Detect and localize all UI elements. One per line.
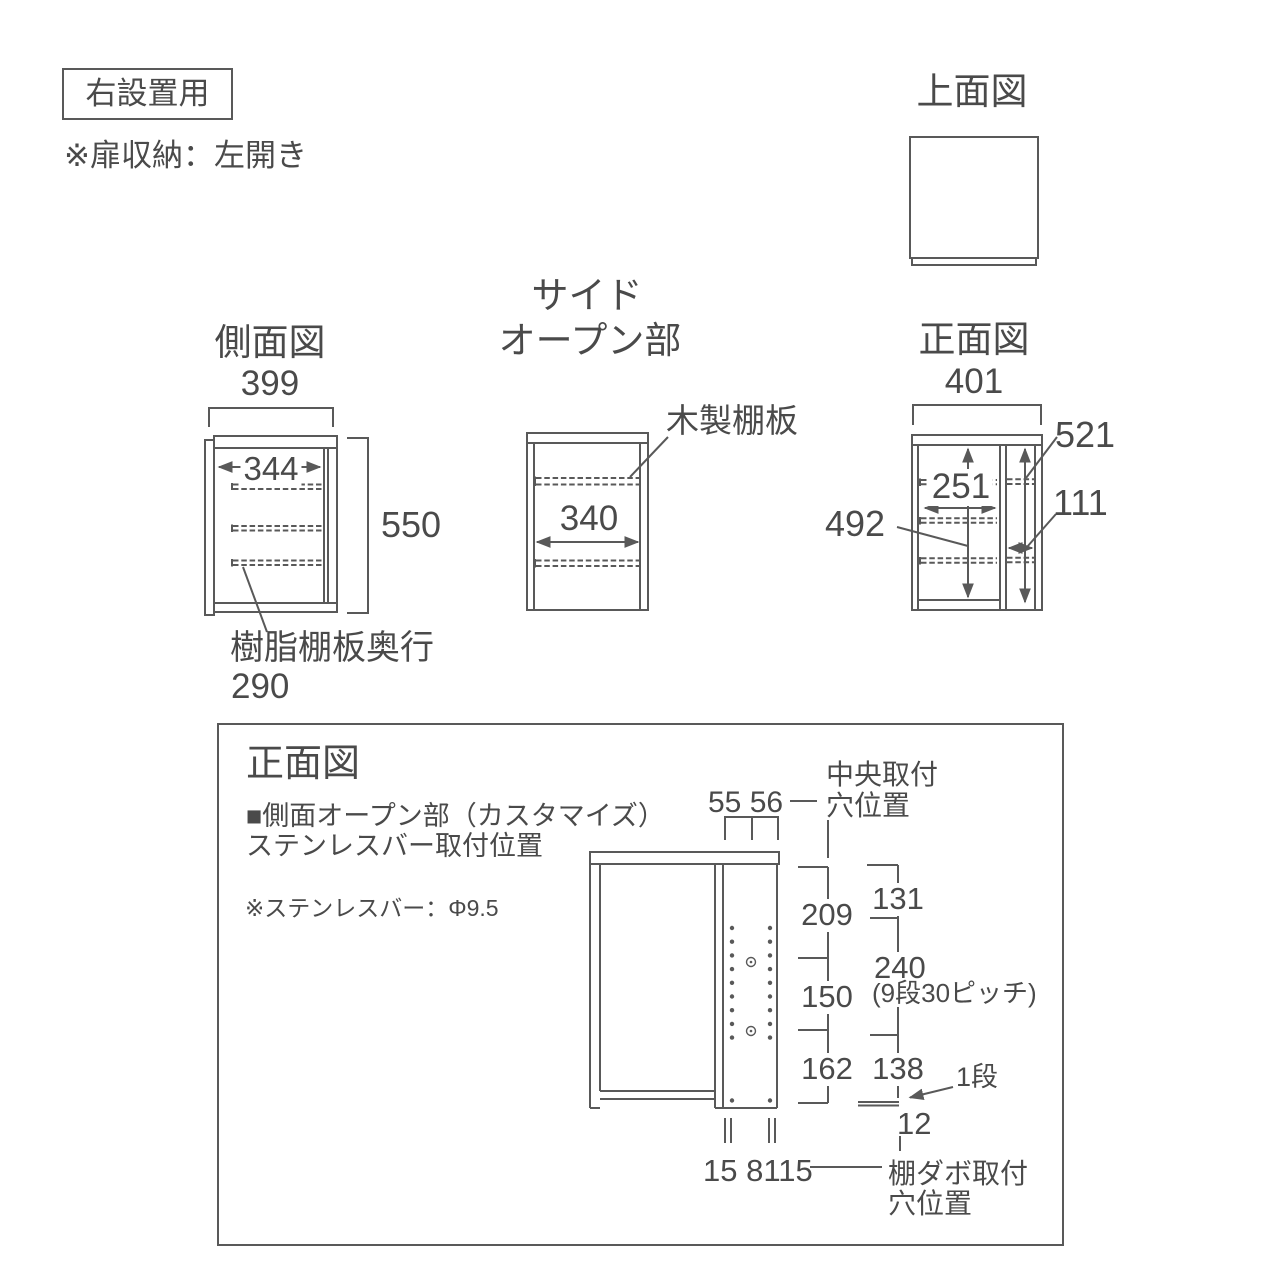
detail-top-rail <box>590 852 779 864</box>
side-open-dim-340: 340 <box>560 501 618 538</box>
side-open-title-line2: オープン部 <box>499 322 682 361</box>
detail-step-label: 1段 <box>956 1063 998 1091</box>
door-note: ※扉収納：左開き <box>64 140 307 173</box>
side-shelf-leader <box>243 567 267 632</box>
top-view-title: 上面図 <box>917 73 1028 112</box>
side-back-strip <box>205 440 214 615</box>
side-dim-550-bracket <box>347 438 368 613</box>
center-hole-label-line2: 穴位置 <box>826 791 910 820</box>
detail-divider <box>715 864 723 1108</box>
front-divider <box>1000 445 1006 610</box>
detail-bottom-ticks <box>725 1118 775 1143</box>
side-dim-399-bracket <box>209 408 333 427</box>
side-view-outline <box>205 408 368 632</box>
shelf-pin-label-line2: 穴位置 <box>888 1189 972 1218</box>
front-dim-251: 251 <box>929 469 993 506</box>
side-dim-399: 399 <box>241 366 299 403</box>
detail-step-arrow <box>910 1087 953 1098</box>
front-view-title: 正面図 <box>919 321 1030 360</box>
detail-dim-240-note: (9段30ピッチ) <box>869 980 1040 1007</box>
side-dim-550: 550 <box>381 506 441 544</box>
wood-shelf-label: 木製棚板 <box>666 404 798 439</box>
detail-dim-209: 209 <box>798 899 856 932</box>
usage-label: 右設置用 <box>86 78 210 111</box>
side-shelf-label: 樹脂棚板奥行 <box>230 631 434 667</box>
detail-dim-150: 150 <box>798 981 856 1014</box>
top-view-outline <box>910 137 1038 265</box>
side-shelf-depth: 290 <box>231 669 289 706</box>
detail-dim-12: 12 <box>897 1108 931 1141</box>
detail-subtitle-line1: ■側面オープン部（カスタマイズ） <box>246 802 665 830</box>
detail-step-mark <box>858 1102 899 1106</box>
detail-cabinet-outline <box>590 852 779 1108</box>
detail-dim-158115: 15 8115 <box>703 1155 813 1188</box>
front-dim-521: 521 <box>1055 416 1115 454</box>
front-view-outline <box>897 405 1057 610</box>
usage-label-box: 右設置用 <box>62 68 233 120</box>
top-view-body <box>910 137 1038 258</box>
detail-dim-5556-bracket <box>725 817 778 840</box>
side-dim-344: 344 <box>240 452 301 487</box>
side-open-title-line1: サイド <box>532 277 643 316</box>
detail-dim-138: 138 <box>869 1053 927 1086</box>
detail-dim-131: 131 <box>869 883 927 916</box>
side-view-title: 側面図 <box>215 324 326 363</box>
detail-left-wall <box>590 864 600 1108</box>
top-view-base <box>912 258 1036 265</box>
front-dim-492: 492 <box>825 505 885 543</box>
detail-dim-162: 162 <box>798 1053 856 1086</box>
side-door-pocket <box>324 448 328 603</box>
front-dim-111: 111 <box>1053 484 1108 522</box>
detail-bottom-rail <box>600 1091 715 1099</box>
detail-center-mount-holes <box>747 958 756 1036</box>
detail-pin-holes <box>730 926 772 1103</box>
side-shelf-dashes <box>233 485 323 566</box>
front-492-leader <box>897 527 968 546</box>
detail-title: 正面図 <box>246 745 360 785</box>
front-dim-401-bracket <box>913 405 1041 425</box>
center-hole-label-line1: 中央取付 <box>826 760 938 789</box>
furniture-technical-drawing: 右設置用 ※扉収納：左開き 上面図 側面図 399 344 550 樹脂棚板奥行… <box>0 0 1280 1280</box>
detail-dim-5556: 55 56 <box>708 787 783 819</box>
detail-note: ※ステンレスバー：Φ9.5 <box>245 896 499 920</box>
drawing-linework <box>0 0 1280 1280</box>
shelf-pin-label-line1: 棚ダボ取付 <box>888 1159 1028 1188</box>
front-dim-401: 401 <box>945 364 1003 401</box>
detail-subtitle-line2: ステンレスバー取付位置 <box>246 832 543 860</box>
